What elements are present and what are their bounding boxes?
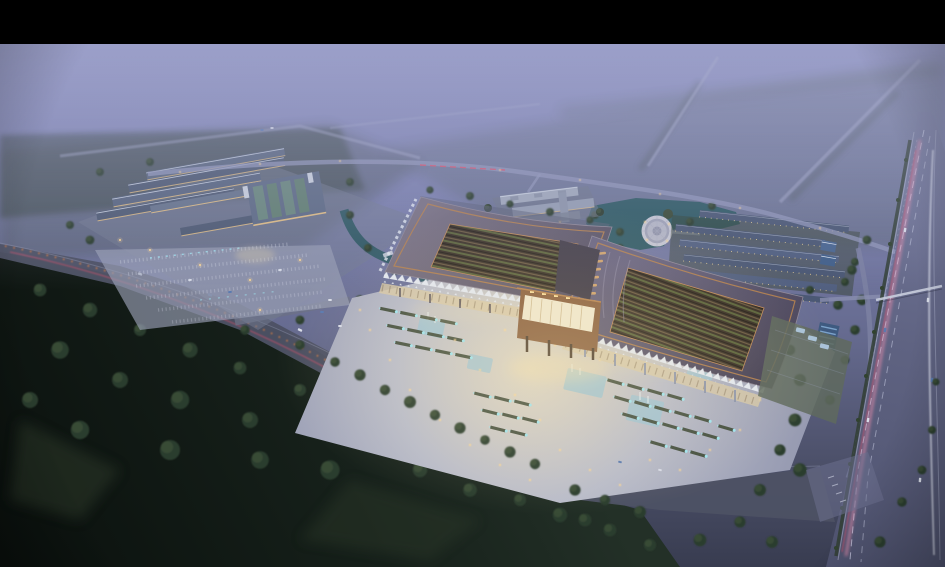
aerial-rendering xyxy=(0,0,945,567)
letterbox-bar xyxy=(0,0,945,44)
screenshot-canvas xyxy=(0,0,945,567)
vignette xyxy=(0,44,945,567)
